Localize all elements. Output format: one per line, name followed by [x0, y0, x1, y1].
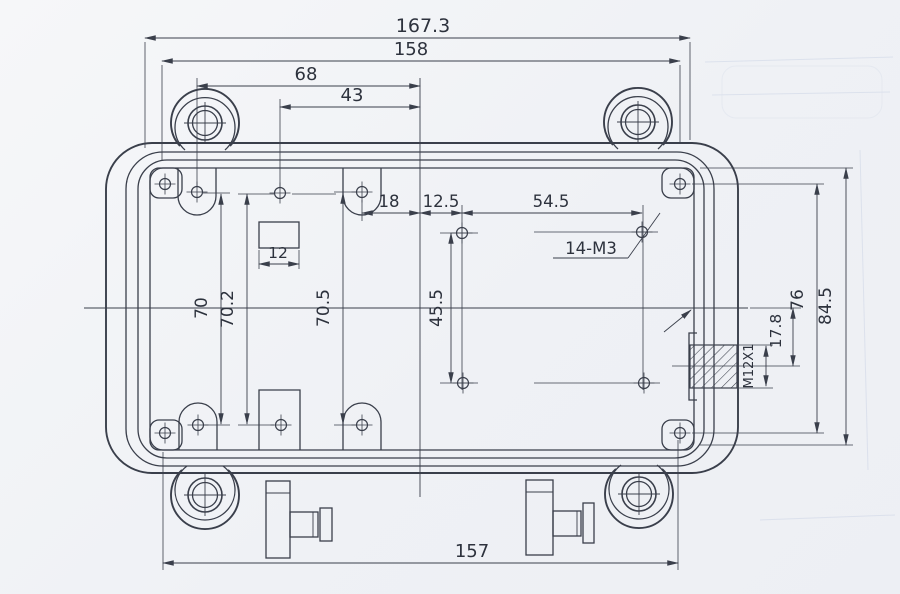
bottom-connector-right [526, 480, 594, 555]
dim-height-45-5: 45.5 [427, 289, 447, 327]
dim-spacing-12-5: 12.5 [423, 192, 460, 211]
corner-boss-top-right [662, 168, 694, 198]
dimension-labels: 167.3 158 68 43 18 12.5 54.5 14-M3 12 15… [192, 15, 836, 562]
dim-height-84-5: 84.5 [816, 287, 836, 325]
dim-height-70: 70 [192, 297, 212, 319]
corner-boss-top-left [150, 168, 182, 198]
dim-spacing-18: 18 [379, 192, 400, 211]
bottom-connector-left [266, 481, 332, 558]
dimension-lines [145, 38, 846, 563]
dim-width-68: 68 [295, 64, 318, 85]
scan-artifacts [705, 57, 895, 520]
dim-height-76: 76 [788, 289, 808, 311]
dim-width-158: 158 [394, 39, 428, 60]
dim-offset-17-8: 17.8 [767, 314, 785, 349]
enclosure-drawing-canvas: 167.3 158 68 43 18 12.5 54.5 14-M3 12 15… [0, 0, 900, 594]
dim-width-157: 157 [455, 541, 489, 562]
dim-slot-12: 12 [268, 244, 288, 262]
label-14-m3-holes: 14-M3 [565, 239, 617, 258]
technical-drawing-page: 167.3 158 68 43 18 12.5 54.5 14-M3 12 15… [0, 0, 900, 594]
corner-boss-bottom-left [150, 420, 182, 450]
dim-overall-width: 167.3 [396, 15, 450, 37]
dim-height-70-5: 70.5 [314, 289, 334, 327]
dim-height-70-2: 70.2 [218, 290, 238, 328]
gland-hatched-section [690, 345, 737, 388]
cable-gland-m12 [689, 333, 737, 400]
dim-width-43: 43 [341, 85, 364, 106]
label-gland-thread: M12X1 [742, 344, 757, 389]
dim-spacing-54-5: 54.5 [533, 192, 570, 211]
